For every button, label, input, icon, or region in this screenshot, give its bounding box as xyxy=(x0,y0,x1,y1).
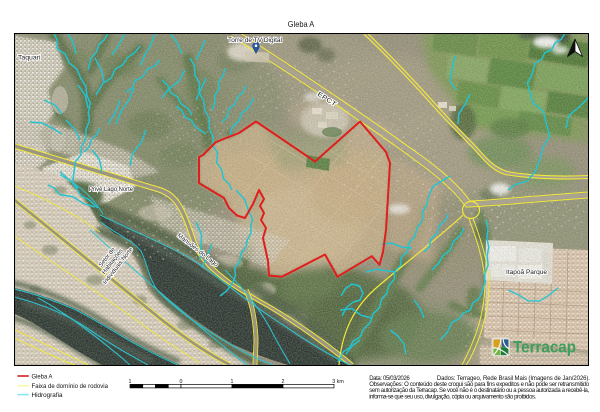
svg-text:informa-se que seu uso, divulg: informa-se que seu uso, divulgação, cópi… xyxy=(369,394,536,400)
svg-text:Hidrografia: Hidrografia xyxy=(32,392,63,399)
svg-text:COMPANHIA IMOBILIÁRIA DE BRASÍ: COMPANHIA IMOBILIÁRIA DE BRASÍLIA xyxy=(514,354,562,358)
svg-text:Observações: O conteúdo deste: Observações: O conteúdo deste croqui são… xyxy=(369,382,590,388)
svg-text:sem autorização da Terracap. S: sem autorização da Terracap. Se você não… xyxy=(369,388,589,394)
svg-text:Terracap: Terracap xyxy=(513,339,576,357)
svg-text:Privê Lago Norte: Privê Lago Norte xyxy=(89,186,134,193)
svg-text:Torre de TV Digital: Torre de TV Digital xyxy=(228,37,282,44)
svg-text:Gleba A: Gleba A xyxy=(32,373,54,380)
svg-text:Gleba A: Gleba A xyxy=(288,19,315,29)
svg-text:Taquari: Taquari xyxy=(18,55,41,62)
svg-text:Itapoã Parque: Itapoã Parque xyxy=(506,269,548,276)
svg-text:Faixa de domínio de rodovia: Faixa de domínio de rodovia xyxy=(32,383,109,390)
